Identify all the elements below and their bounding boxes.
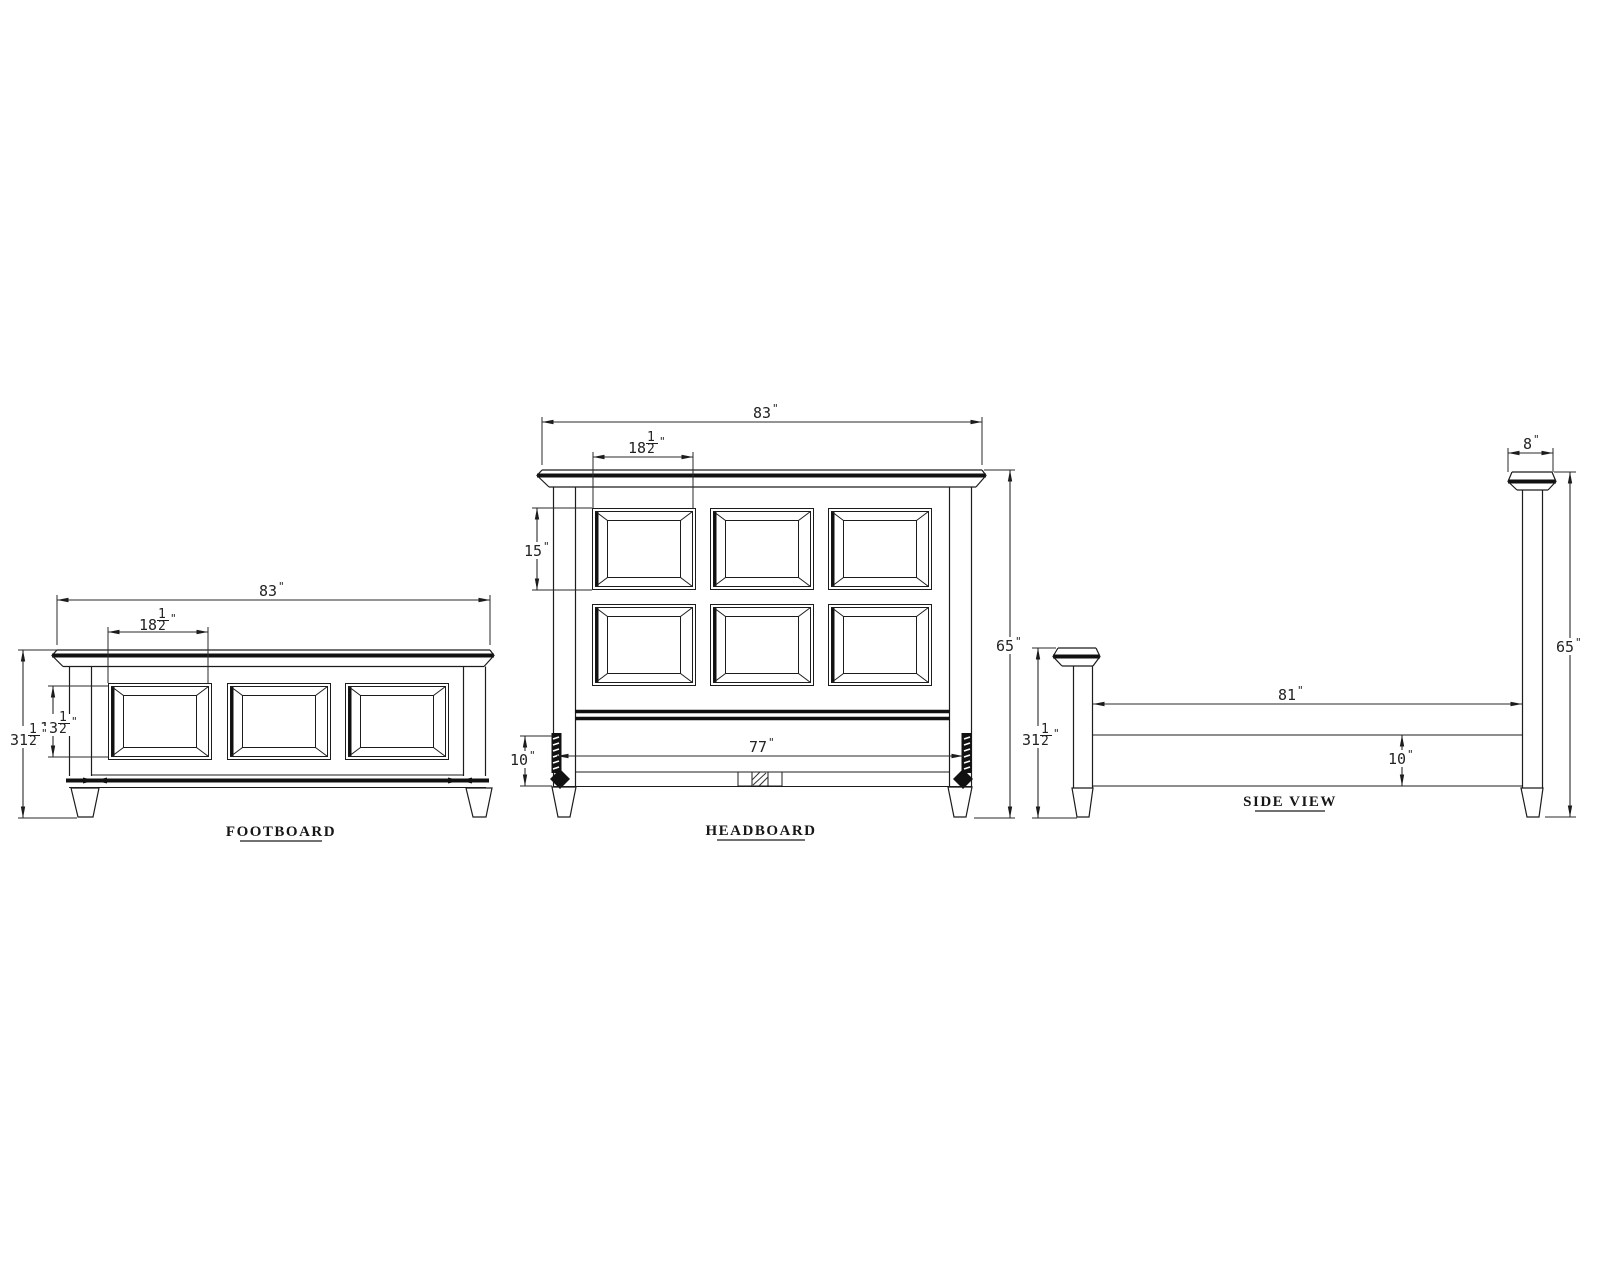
svg-text:": " [170,612,177,625]
svg-text:10: 10 [510,751,528,769]
svg-text:2: 2 [647,442,655,457]
svg-text:": " [529,749,536,762]
svg-text:": " [772,402,779,415]
svg-text:": " [543,540,550,553]
svg-text:15: 15 [524,542,542,560]
svg-text:31: 31 [10,731,28,749]
drawing-background [0,0,1600,1280]
svg-text:": " [1015,635,1022,648]
svg-text:": " [768,736,775,749]
svg-text:": " [1533,433,1540,446]
svg-text:": " [1053,727,1060,740]
svg-text:65: 65 [996,637,1014,655]
svg-text:2: 2 [158,619,166,634]
side-view-label: SIDE VIEW [1243,794,1337,810]
svg-text:": " [41,727,48,740]
svg-text:18: 18 [628,439,646,457]
svg-text:83: 83 [259,582,277,600]
svg-text:": " [71,715,78,728]
svg-text:10: 10 [1388,750,1406,768]
bed-technical-drawing: 83 " 18 1 2 " 13 1 2 " [0,0,1600,1280]
svg-text:": " [1575,636,1582,649]
svg-text:": " [1407,748,1414,761]
svg-text:31: 31 [1022,731,1040,749]
svg-text:65: 65 [1556,638,1574,656]
svg-text:2: 2 [1041,734,1049,749]
svg-text:77: 77 [749,738,767,756]
svg-text:": " [659,435,666,448]
svg-text:81: 81 [1278,686,1296,704]
svg-text:": " [1297,684,1304,697]
footboard-view-label: FOOTBOARD [226,824,336,840]
headboard-view-label: HEADBOARD [705,823,816,839]
svg-text:83: 83 [753,404,771,422]
svg-text:18: 18 [139,616,157,634]
svg-text:8: 8 [1523,435,1532,453]
svg-text:2: 2 [59,722,67,737]
svg-text:": " [278,580,285,593]
svg-text:2: 2 [29,734,37,749]
